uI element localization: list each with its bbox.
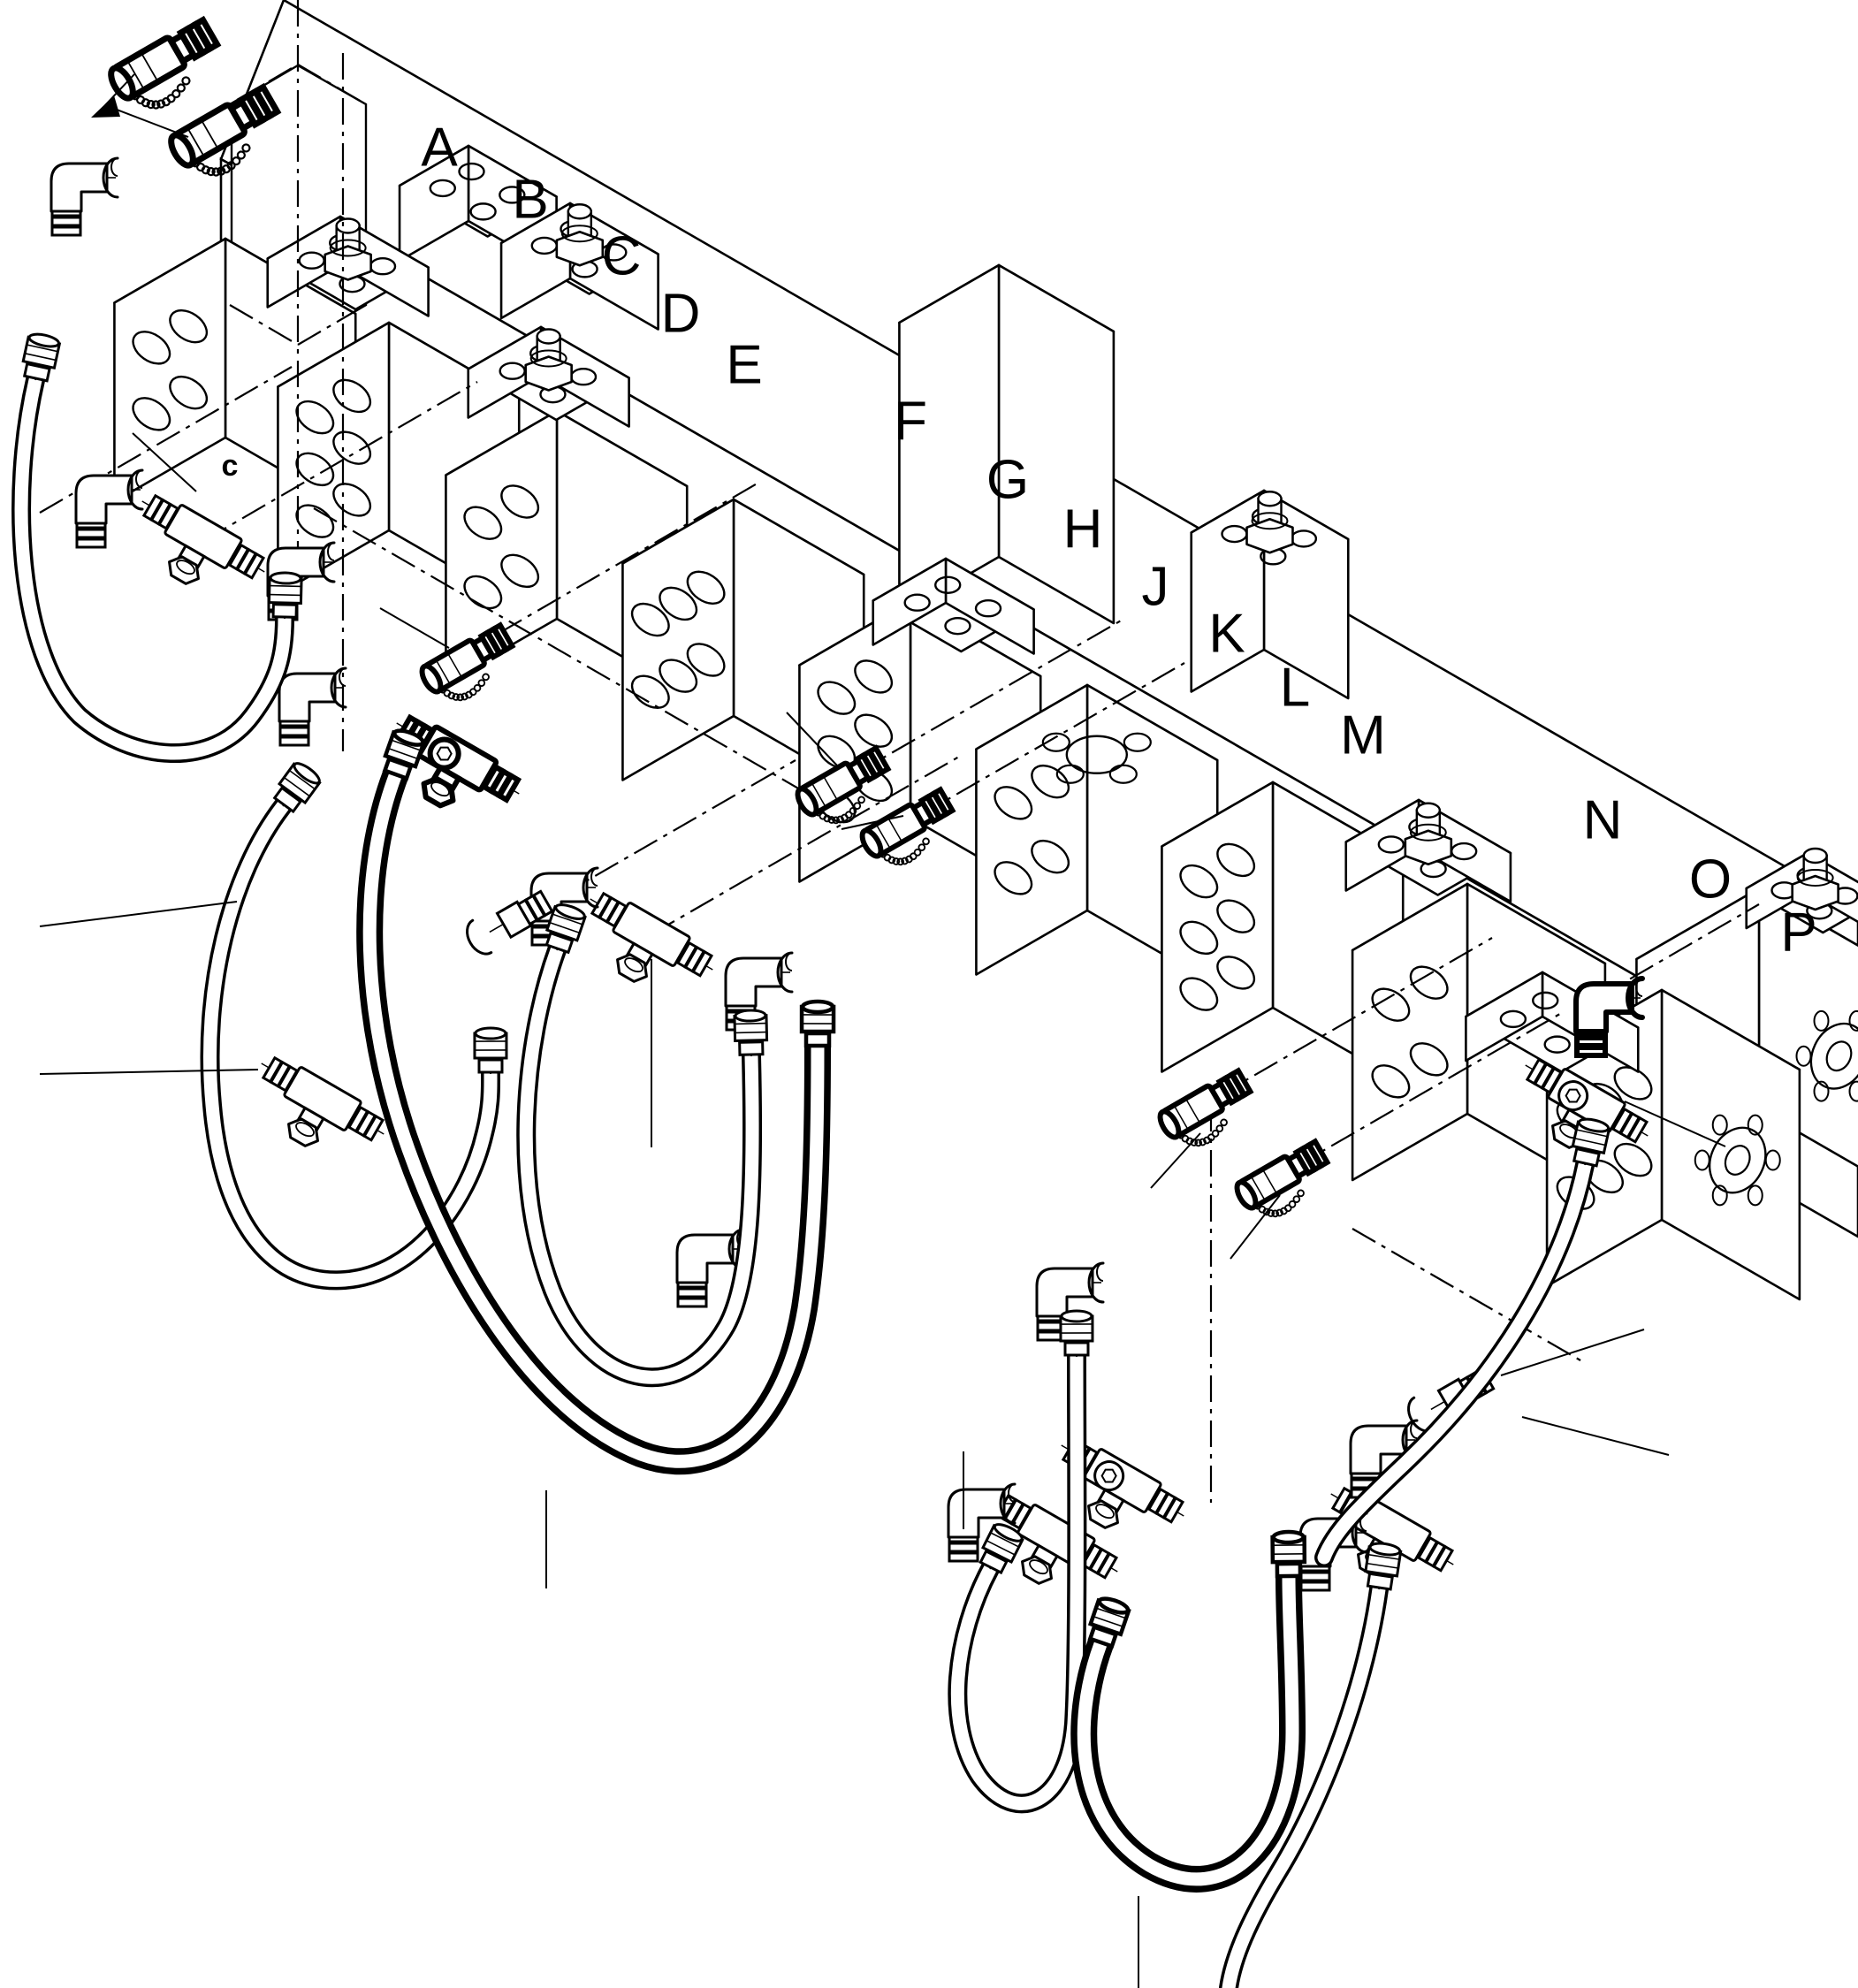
hose-end-nut	[735, 1010, 767, 1057]
hose-end-nut	[269, 573, 301, 620]
hose-core	[526, 950, 752, 1377]
hose-end-nut	[802, 1002, 834, 1047]
clip-nut-inner	[786, 953, 792, 971]
hose-end-nut	[475, 1028, 506, 1074]
plug-stem-top	[568, 204, 591, 218]
nut-facet	[735, 1024, 766, 1024]
chain-link	[201, 165, 210, 175]
leader-arrowhead	[91, 95, 120, 118]
plug-stem-top	[1258, 491, 1281, 506]
nut-open-end	[803, 1002, 833, 1012]
plug-stem-top	[1804, 849, 1827, 863]
nut-facet	[270, 595, 301, 596]
elbow-body	[51, 164, 107, 211]
ferrule	[740, 1042, 763, 1055]
valve-bank-hose-diagram: ABCDEFGHJKLMNOPc	[0, 0, 1858, 1988]
scene: ABCDEFGHJKLMNOPc	[19, 0, 1858, 1988]
test-coupler	[107, 18, 232, 123]
hose-end-nut	[1061, 1311, 1093, 1357]
diagram-page: ABCDEFGHJKLMNOPc	[0, 0, 1858, 1988]
section-label-H: H	[1063, 499, 1103, 560]
port-label-c: c	[222, 449, 239, 483]
chain-link	[469, 688, 477, 696]
nut-open-end	[270, 573, 301, 584]
clip-nut-inner	[591, 868, 598, 886]
elbow-body	[76, 476, 132, 523]
nut-open-end	[735, 1010, 765, 1022]
tee-fitting	[237, 1049, 392, 1177]
chain-link	[1207, 1133, 1215, 1141]
leader-line	[380, 608, 449, 648]
section-label-P: P	[1780, 902, 1816, 963]
clip-nut-inner	[1097, 1263, 1103, 1281]
test-coupler	[1233, 1139, 1338, 1229]
section-label-B: B	[512, 169, 548, 230]
barb-ridge	[1577, 1047, 1605, 1055]
section-label-G: G	[986, 449, 1029, 510]
barb-ridge	[949, 1543, 978, 1551]
section-label-L: L	[1280, 657, 1310, 718]
chain-link	[166, 94, 176, 103]
barb-ridge	[678, 1299, 706, 1306]
leader-line	[40, 1070, 258, 1074]
section-label-O: O	[1689, 849, 1732, 910]
barb-ridge	[1301, 1573, 1329, 1580]
assembly-axis	[490, 924, 504, 932]
elbow-fitting	[279, 668, 346, 745]
chain-link	[887, 856, 895, 864]
tee-fitting	[118, 487, 273, 615]
hose-end-nut	[380, 727, 425, 781]
section-label-N: N	[1583, 789, 1623, 850]
hose-end-nut	[1363, 1542, 1401, 1592]
elbow-body	[726, 958, 781, 1006]
hose-end-nut	[1085, 1596, 1131, 1649]
nut-facet	[270, 586, 301, 587]
barb-ridge	[77, 539, 105, 547]
leader-line	[1522, 1417, 1669, 1455]
section-label-F: F	[894, 391, 927, 452]
ferrule	[1065, 1343, 1088, 1355]
barb-ridge	[52, 227, 80, 235]
hose-outline	[957, 1357, 1077, 1803]
barb-ridge	[1301, 1582, 1329, 1590]
section-label-E: E	[726, 334, 762, 395]
chain-link	[141, 98, 150, 108]
hose-assembly	[210, 759, 506, 1280]
elbow-body	[1037, 1268, 1093, 1316]
leader-line	[1151, 1133, 1200, 1188]
barb-ridge	[1577, 1038, 1605, 1046]
section-label-C: C	[602, 225, 642, 286]
nut-open-end	[1274, 1532, 1304, 1542]
nut-open-end	[1062, 1311, 1092, 1322]
plug-stem-top	[537, 330, 560, 344]
leader-line	[40, 902, 237, 926]
ferrule	[479, 1060, 502, 1072]
test-coupler	[1156, 1069, 1261, 1158]
section-label-D: D	[661, 283, 701, 344]
clip-nut	[461, 920, 491, 959]
barb-ridge	[280, 727, 308, 735]
chain-link	[910, 852, 918, 860]
barb-ridge	[949, 1553, 978, 1561]
plug-stem-top	[1417, 804, 1440, 818]
barb-ridge	[678, 1289, 706, 1297]
barb-ridge	[77, 529, 105, 537]
block-left-face	[114, 239, 225, 502]
section-label-J: J	[1142, 556, 1169, 617]
chain-link	[447, 691, 455, 699]
elbow-body	[279, 674, 335, 721]
nut-facet	[735, 1032, 766, 1033]
hose-end-nut	[19, 331, 60, 383]
section-label-M: M	[1340, 705, 1386, 765]
barb-ridge	[280, 737, 308, 745]
ferrule	[1277, 1564, 1300, 1576]
elbow-fitting	[76, 470, 142, 547]
clip-nut-inner	[111, 158, 118, 176]
ferrule	[806, 1033, 829, 1046]
chain-link	[1284, 1204, 1292, 1212]
hose-end-nut	[1273, 1532, 1305, 1578]
nut-open-end	[476, 1028, 506, 1039]
barb-ridge	[52, 217, 80, 225]
elbow-fitting	[51, 158, 118, 235]
plug-stem-top	[337, 219, 360, 233]
ferrule	[273, 605, 296, 618]
assembly-axis	[1431, 1401, 1445, 1409]
section-label-K: K	[1208, 603, 1245, 664]
hose-assembly	[1229, 1542, 1402, 1988]
hose-assembly-bold	[1084, 1532, 1305, 1879]
elbow-body	[677, 1235, 733, 1283]
section-label-A: A	[421, 117, 458, 178]
